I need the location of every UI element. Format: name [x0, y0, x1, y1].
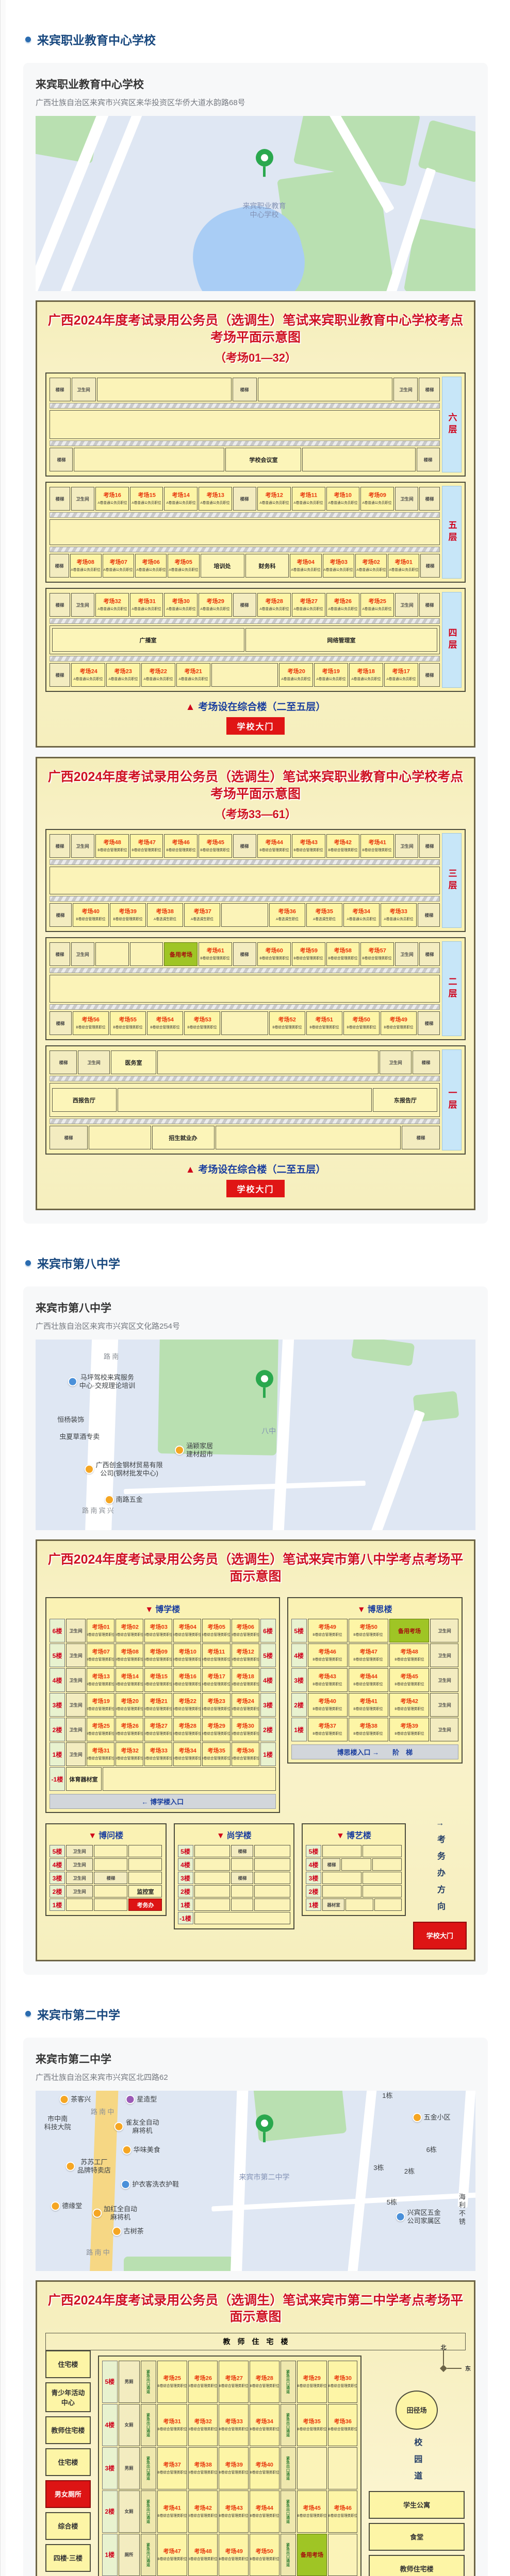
- room-sublabel: B卷综合管理类职位: [354, 1706, 383, 1711]
- building-label: ▼博思楼: [291, 1602, 458, 1615]
- campus-building-box: 校 园 道: [408, 2434, 425, 2487]
- open-area: [50, 867, 440, 894]
- exam-room-cell: 考场06B卷综合管理类职位: [232, 1619, 259, 1642]
- facility-cell: 卫生间: [395, 593, 419, 617]
- room-sublabel: B卷综合管理类职位: [157, 2513, 187, 2518]
- room-sublabel: A卷普通公务员职位: [324, 567, 353, 572]
- exam-room-cell: 考场35B卷综合管理类职位: [202, 1742, 230, 1766]
- corridor-band: [50, 968, 440, 973]
- corridor-band: [50, 656, 440, 662]
- room-sublabel: B卷综合管理类职位: [116, 1756, 143, 1760]
- room-label: 卫生间: [70, 1677, 83, 1683]
- room-cell-empty: [128, 1872, 162, 1884]
- room-label: 考场09: [150, 1648, 167, 1656]
- exam-room-cell: 考场52B卷综合管理类职位: [269, 1011, 305, 1035]
- exam-room-cell: 考场20A卷普通公务员职位: [279, 663, 313, 687]
- floor-row: 楼梯卫生间考场16A卷普通公务员职位考场15A卷普通公务员职位考场14A卷普通公…: [50, 487, 440, 511]
- room-sublabel: B卷综合管理类职位: [354, 1682, 383, 1686]
- map-poi-label: 涵颖家居 建材超市: [175, 1442, 213, 1459]
- corridor-band: [50, 403, 440, 409]
- floor-plan: 楼梯卫生间备用考场考场61B卷综合管理类职位楼梯考场60B卷综合管理类职位考场5…: [45, 937, 466, 1040]
- floor-plan: 楼梯卫生间医务室卫生间楼梯西报告厅东报告厅楼梯招生就业办楼梯一层: [45, 1045, 466, 1155]
- room-label: 考场59: [300, 946, 317, 955]
- floor-row: -1楼体育器材室: [50, 1767, 276, 1791]
- facility-cell: 女厕: [119, 2490, 140, 2533]
- floor-tag: 5楼: [291, 1619, 307, 1642]
- floor-plan: 楼梯卫生间考场32A卷普通公务员职位考场31A卷普通公务员职位考场30A卷普通公…: [45, 588, 466, 692]
- floor-plan: 楼梯卫生间考场48B卷综合管理类职位考场47B卷综合管理类职位考场46B卷综合管…: [45, 829, 466, 932]
- corridor-cell: 紧急出口通道: [281, 2404, 296, 2446]
- office-cell: 医务室: [111, 1050, 156, 1074]
- layout-col: 5楼男厕紧急出口通道考场25B卷综合管理类职位考场26B卷综合管理类职位考场27…: [98, 2350, 362, 2576]
- poster-title: 广西2024年度考试录用公务员（选调生）笔试来宾职业教育中心学校考点考场平面示意…: [45, 312, 466, 346]
- exam-room-cell: 考场13B卷综合管理类职位: [87, 1668, 114, 1692]
- office-cell: 招生就业办: [152, 1126, 215, 1149]
- map-poi-label: 虫夏草酒专卖: [59, 1433, 100, 1441]
- room-sublabel: B卷综合管理类职位: [328, 2513, 357, 2518]
- room-cell-empty: [194, 1858, 231, 1871]
- room-sublabel: B卷综合管理类职位: [188, 2470, 218, 2475]
- layout-col: ↑ 考 务 办 方 向学校大门: [413, 1818, 467, 1949]
- floor-row: 6楼卫生间考场01B卷综合管理类职位考场02B卷综合管理类职位考场03B卷综合管…: [50, 1619, 276, 1642]
- room-sublabel: B卷综合管理类职位: [87, 1632, 114, 1637]
- corridor-band: [50, 547, 440, 552]
- map-road: [458, 2091, 475, 2208]
- exam-room-cell: 考场27B卷综合管理类职位: [219, 2361, 249, 2403]
- exam-room-cell: 考场29B卷综合管理类职位: [297, 2361, 327, 2403]
- facility-cell: 卫生间: [395, 487, 419, 511]
- map-poi-label: 3栋: [373, 2164, 384, 2172]
- floor-row: 4楼卫生间: [50, 1858, 162, 1871]
- corridor-band: [50, 440, 440, 446]
- room-label: 楼梯: [240, 951, 249, 957]
- floor-row: 楼梯考场08A卷普通公务员职位考场07A卷普通公务员职位考场06A卷普通公务员职…: [50, 554, 440, 578]
- room-label: 考场14: [172, 491, 190, 499]
- room-sublabel: A卷普通公务员职位: [294, 500, 323, 505]
- corridor-cell: 紧急出口通道: [281, 2447, 296, 2489]
- floor-tag: 5楼: [260, 1643, 276, 1667]
- floor-tag: 5楼: [178, 1845, 193, 1857]
- floor-row: 楼梯卫生间备用考场考场61B卷综合管理类职位楼梯考场60B卷综合管理类职位考场5…: [50, 942, 440, 966]
- room-label: 考场24: [79, 667, 97, 675]
- poster-note: ▲考场设在综合楼（二至五层）: [45, 699, 466, 713]
- floor-row: 2楼考场40B卷综合管理类职位考场41B卷综合管理类职位考场42B卷综合管理类职…: [291, 1693, 458, 1717]
- room-sublabel: B卷综合管理类职位: [144, 1706, 172, 1711]
- facility-cell: 楼梯: [419, 378, 440, 401]
- map-pin-icon: [256, 149, 273, 177]
- poi-icon: [59, 2095, 69, 2104]
- room-sublabel: B卷综合管理类职位: [116, 1657, 143, 1662]
- exam-room-cell: 考场44B卷综合管理类职位: [349, 1668, 388, 1692]
- room-sublabel: B卷综合管理类职位: [87, 1682, 114, 1686]
- room-label: 考场14: [121, 1672, 138, 1681]
- room-label: 考场31: [92, 1747, 109, 1755]
- layout-row: 住宅楼青少年活动中心教师住宅楼住宅楼男女厕所综合楼四楼·三楼教师住宅楼5楼男厕紧…: [45, 2350, 466, 2576]
- room-sublabel: B卷综合管理类职位: [232, 1706, 259, 1711]
- room-sublabel: B卷综合管理类职位: [297, 2513, 326, 2518]
- exam-room-cell: 考场16A卷普通公务员职位: [95, 487, 129, 511]
- building-label: ▼博问楼: [50, 1828, 162, 1841]
- room-cell-empty: [74, 448, 224, 471]
- room-label: 考场46: [319, 1648, 336, 1656]
- facility-cell: 楼梯: [50, 1011, 72, 1035]
- floor-tag: 3楼: [306, 1872, 321, 1884]
- room-cell-empty: [254, 1885, 290, 1897]
- floor-row: -1楼: [178, 1912, 291, 1924]
- room-label: 考场29: [207, 1722, 225, 1730]
- room-label: 楼梯: [426, 563, 435, 569]
- room-label: 楼梯: [55, 602, 64, 608]
- floor-row: 2楼: [178, 1885, 291, 1897]
- room-label: 卫生间: [73, 1848, 86, 1854]
- room-label: 考场37: [193, 907, 211, 916]
- floor-tag: 4楼: [102, 2404, 118, 2446]
- room-cell-empty: [254, 1858, 290, 1871]
- facility-cell: 楼梯: [322, 1858, 340, 1871]
- exam-room-cell: 考场04B卷综合管理类职位: [173, 1619, 201, 1642]
- building-label: ▼尚学楼: [178, 1828, 291, 1841]
- room-label: 考场37: [163, 2460, 180, 2468]
- room-label: 考场28: [265, 597, 283, 605]
- open-area: [50, 410, 440, 439]
- room-cell-empty: [128, 1845, 162, 1857]
- corridor-cell: 紧急出口通道: [281, 2361, 296, 2403]
- map-road-label: 南 路: [102, 1353, 119, 1361]
- room-sublabel: B卷综合管理类职位: [219, 2383, 249, 2388]
- room-label: 培训处: [213, 562, 231, 570]
- floor-tag: -1楼: [178, 1912, 193, 1924]
- room-sublabel: B卷综合管理类职位: [394, 1682, 424, 1686]
- floor-row: 楼梯考场56B卷综合管理类职位考场55B卷综合管理类职位考场54B卷综合管理类职…: [50, 1011, 440, 1035]
- room-cell-empty: [221, 903, 268, 927]
- room-label: 考场07: [92, 1648, 109, 1656]
- room-label: 考场36: [334, 2417, 351, 2425]
- exam-room-cell: 考场41B卷综合管理类职位: [360, 834, 394, 858]
- floor-plan: 楼梯卫生间考场16A卷普通公务员职位考场15A卷普通公务员职位考场14A卷普通公…: [45, 482, 466, 583]
- room-cell-empty: [328, 2447, 358, 2489]
- campus-building-box: 住宅楼: [45, 2350, 91, 2378]
- room-label: 卫生间: [73, 1861, 86, 1868]
- exam-site-section: 来宾市第二中学来宾市第二中学广西壮族自治区来宾市兴宾区北四路62中 南 路茶客兴…: [1, 1975, 510, 2576]
- room-sublabel: A卷普通公务员职位: [201, 606, 230, 611]
- room-sublabel: B卷综合管理类职位: [188, 2556, 218, 2561]
- map-widget[interactable]: 南 路马坪驾校来宾服务 中心·交规理论培训恒杨装饰虫夏草酒专卖涵颖家居 建材超市…: [36, 1340, 475, 1530]
- exam-room-cell: 考场29B卷综合管理类职位: [202, 1718, 230, 1741]
- section-header: 来宾职业教育中心学校: [25, 21, 510, 58]
- floor-row: 楼梯考场24A卷普通公务员职位考场23A卷普通公务员职位考场22A卷普通公务员职…: [50, 663, 440, 687]
- room-sublabel: B卷综合管理类职位: [328, 2427, 357, 2431]
- layout-col: ▼博问楼5楼卫生间4楼卫生间3楼卫生间楼梯2楼卫生间监控室1楼考务办: [45, 1818, 167, 1921]
- room-label: 考场25: [163, 2374, 180, 2382]
- exam-room-cell: 考场40B卷综合管理类职位: [308, 1693, 348, 1717]
- room-label: 备用考场: [398, 1626, 421, 1635]
- exam-room-cell: 考场59B卷综合管理类职位: [292, 942, 325, 966]
- map-pin-icon: [256, 2114, 273, 2142]
- room-label: 紧急出口通道: [286, 2413, 291, 2437]
- room-sublabel: B卷综合管理类职位: [250, 2427, 279, 2431]
- layout-stack: 5楼男厕紧急出口通道考场25B卷综合管理类职位考场26B卷综合管理类职位考场27…: [98, 2350, 362, 2576]
- layout-stack: ↑ 考 务 办 方 向学校大门: [413, 1818, 467, 1949]
- room-label: 考场44: [256, 2503, 273, 2512]
- floor-tag: 4楼: [50, 1858, 65, 1871]
- room-sublabel: B卷综合管理类职位: [144, 1632, 172, 1637]
- campus-building-box: 田径场: [396, 2391, 438, 2430]
- exam-room-cell: 考场44B卷综合管理类职位: [257, 834, 291, 858]
- room-sublabel: B卷综合管理类职位: [157, 2383, 187, 2388]
- room-sublabel: B卷综合管理类职位: [144, 1682, 172, 1686]
- exam-room-cell: 考场11A卷普通公务员职位: [292, 487, 325, 511]
- facility-cell: 楼梯: [50, 942, 70, 966]
- room-label: 楼梯: [240, 386, 249, 393]
- room-cell-empty: [94, 1845, 127, 1857]
- room-label: 考场17: [207, 1672, 225, 1681]
- exam-room-cell: 考场55B卷综合管理类职位: [110, 1011, 146, 1035]
- floor-tag: 6楼: [260, 1619, 276, 1642]
- room-label: 考场41: [163, 2503, 180, 2512]
- room-label: 考场04: [297, 558, 315, 566]
- exam-room-cell: 考场58B卷综合管理类职位: [326, 942, 360, 966]
- map-poi-label: 5栋: [387, 2198, 397, 2207]
- room-label: 考场33: [225, 2417, 242, 2425]
- corridor-band: [50, 896, 440, 902]
- exam-room-cell: 考场51B卷综合管理类职位: [306, 1011, 342, 1035]
- building-name: 博艺楼: [347, 1832, 371, 1840]
- poster-body: 楼梯卫生间考场48B卷综合管理类职位考场47B卷综合管理类职位考场46B卷综合管…: [45, 829, 466, 1197]
- room-label: 考场35: [207, 1747, 225, 1755]
- layout-col: 北东田径场校 园 道学生公寓食堂教师住宅楼教师住宅楼学生公寓篮 球 场: [369, 2350, 465, 2576]
- exam-room-cell: 考场42B卷综合管理类职位: [188, 2490, 218, 2533]
- room-label: 考场38: [156, 907, 174, 916]
- room-label: 考场02: [121, 1623, 138, 1631]
- room-label: 楼梯: [238, 1875, 246, 1881]
- campus-building-box: 综合楼: [45, 2512, 91, 2540]
- poi-icon: [105, 1495, 114, 1504]
- room-label: 考场34: [256, 2417, 273, 2425]
- room-sublabel: A卷普通公务员职位: [328, 500, 357, 505]
- room-label: 考场51: [316, 1015, 333, 1024]
- room-label: 楼梯: [240, 602, 249, 608]
- exam-room-cell: 考场23B卷综合管理类职位: [202, 1693, 230, 1717]
- room-cell-empty: [211, 663, 278, 687]
- facility-cell: 卫生间: [66, 1845, 93, 1857]
- corridor-band: [50, 859, 440, 865]
- room-label: 考场36: [278, 907, 296, 916]
- exam-room-cell: 考场01B卷综合管理类职位: [87, 1619, 114, 1642]
- exam-room-cell: 考场47B卷综合管理类职位: [130, 834, 163, 858]
- room-label: 考场48: [194, 2547, 211, 2555]
- poi-icon: [396, 2212, 405, 2222]
- room-sublabel: B卷综合管理类职位: [250, 2556, 279, 2561]
- room-label: 考场31: [163, 2417, 180, 2425]
- room-label: 卫生间: [399, 386, 412, 393]
- exam-room-cell: 考场37A卷选调生职位: [184, 903, 220, 927]
- room-sublabel: A卷普通公务员职位: [351, 676, 381, 681]
- room-cell-empty: [322, 1885, 361, 1897]
- room-sublabel: B卷综合管理类职位: [116, 1731, 143, 1736]
- room-sublabel: B卷综合管理类职位: [202, 1756, 230, 1760]
- room-label: 楼梯: [107, 1875, 116, 1881]
- room-cell-empty: [374, 1899, 402, 1911]
- room-label: 考场17: [392, 667, 410, 675]
- floor-row: 4楼: [178, 1858, 291, 1871]
- exam-room-cell: 考场29A卷普通公务员职位: [199, 593, 232, 617]
- floor-row: 1楼考场37B卷综合管理类职位考场38B卷综合管理类职位考场39B卷综合管理类职…: [291, 1718, 458, 1741]
- exam-room-cell: 考场19A卷普通公务员职位: [314, 663, 348, 687]
- floor-row: 2楼卫生间考场25B卷综合管理类职位考场26B卷综合管理类职位考场27B卷综合管…: [50, 1718, 276, 1741]
- room-sublabel: B卷综合管理类职位: [297, 2427, 326, 2431]
- room-label: 考场11: [208, 1648, 225, 1656]
- room-sublabel: A卷普通公务员职位: [166, 500, 195, 505]
- room-label: 考场39: [119, 907, 137, 916]
- map-school-label: 来宾职业教育 中心学校: [243, 201, 286, 219]
- room-label: 考场24: [236, 1697, 254, 1705]
- poi-icon: [112, 2227, 122, 2236]
- poster-body: ▼博学楼6楼卫生间考场01B卷综合管理类职位考场02B卷综合管理类职位考场03B…: [45, 1592, 466, 1949]
- open-area: [50, 975, 440, 1003]
- building-name: 博思楼: [368, 1605, 392, 1614]
- room-sublabel: B卷综合管理类职位: [394, 1706, 424, 1711]
- room-sublabel: B卷综合管理类职位: [157, 2427, 187, 2431]
- exam-room-cell: 考场60B卷综合管理类职位: [257, 942, 291, 966]
- facility-cell: 卫生间: [66, 1742, 86, 1766]
- floor-row: 5楼卫生间考场07B卷综合管理类职位考场08B卷综合管理类职位考场09B卷综合管…: [50, 1643, 276, 1667]
- room-sublabel: B卷综合管理类职位: [313, 1682, 342, 1686]
- exam-room-cell: 考场08A卷普通公务员职位: [70, 554, 102, 578]
- poi-icon: [175, 1446, 184, 1455]
- room-sublabel: A卷选调生职位: [313, 917, 336, 921]
- room-sublabel: B卷综合管理类职位: [250, 2383, 279, 2388]
- room-label: 考场19: [92, 1697, 109, 1705]
- exam-room-cell: 考场45B卷综合管理类职位: [389, 1668, 429, 1692]
- room-label: 体育器材室: [70, 1775, 98, 1783]
- exam-room-cell: 考场38B卷综合管理类职位: [349, 1718, 388, 1741]
- building-label: ▼博艺楼: [306, 1828, 402, 1841]
- room-label: 楼梯: [425, 672, 434, 678]
- room-label: 考场46: [334, 2503, 351, 2512]
- floor-row: 2楼女厕紧急出口通道考场41B卷综合管理类职位考场42B卷综合管理类职位考场43…: [102, 2490, 358, 2533]
- facility-cell: 卫生间: [71, 487, 95, 511]
- exam-room-cell: 考场13A卷普通公务员职位: [199, 487, 232, 511]
- map-poi-label: 五金小区: [413, 2113, 451, 2122]
- map-school-label: 来宾市第二中学: [239, 2173, 290, 2182]
- exam-room-cell: 考场38A卷选调生职位: [147, 903, 183, 927]
- room-sublabel: B卷综合管理类职位: [394, 1657, 424, 1662]
- floor-row: 1楼器材室: [306, 1899, 402, 1911]
- floor-row: 5楼考场49B卷综合管理类职位考场50B卷综合管理类职位备用考场卫生间: [291, 1619, 458, 1642]
- room-sublabel: B卷综合管理类职位: [232, 1756, 259, 1760]
- room-cell-empty: [302, 448, 415, 471]
- room-sublabel: B卷综合管理类职位: [116, 1632, 143, 1637]
- room-label: 楼梯: [425, 602, 434, 608]
- map-widget[interactable]: 中 南 路茶客兴星造型市中南 科技大院雀友全自动 麻将机华味美食苏苏工厂 品牌特…: [36, 2091, 475, 2271]
- layout-row: ▼博学楼6楼卫生间考场01B卷综合管理类职位考场02B卷综合管理类职位考场03B…: [45, 1592, 466, 1818]
- room-sublabel: B卷综合管理类职位: [188, 1025, 217, 1029]
- floor-tag: 2楼: [291, 1693, 307, 1717]
- room-sublabel: B卷综合管理类职位: [294, 848, 323, 852]
- poster-title: 广西2024年度考试录用公务员（选调生）笔试来宾市第二中学考点考场平面示意图: [45, 2292, 466, 2326]
- campus-building-box: 青少年活动中心: [45, 2382, 91, 2412]
- exam-room-cell: 考场48B卷综合管理类职位: [95, 834, 129, 858]
- floor-plan: 楼梯卫生间楼梯卫生间楼梯楼梯学校会议室楼梯六层: [45, 372, 466, 477]
- room-label: 考场18: [357, 667, 375, 675]
- room-label: 器材室: [327, 1902, 340, 1908]
- poster-body: 楼梯卫生间楼梯卫生间楼梯楼梯学校会议室楼梯六层楼梯卫生间考场16A卷普通公务员职…: [45, 372, 466, 735]
- bullet-icon: [25, 2011, 31, 2016]
- exam-room-cell: 考场06A卷普通公务员职位: [135, 554, 167, 578]
- room-label: 楼梯: [55, 951, 64, 957]
- exam-room-cell: 考场57B卷综合管理类职位: [360, 942, 394, 966]
- building-name: 博问楼: [98, 1832, 123, 1840]
- map-road: [360, 1410, 425, 1531]
- exam-room-cell: 考场25B卷综合管理类职位: [87, 1718, 114, 1741]
- room-label: 考场28: [178, 1722, 196, 1730]
- floor-row: 5楼卫生间: [50, 1845, 162, 1857]
- room-label: 考场15: [138, 491, 155, 499]
- poi-icon: [413, 2113, 422, 2122]
- floor-row: 4楼女厕紧急出口通道考场31B卷综合管理类职位考场32B卷综合管理类职位考场33…: [102, 2404, 358, 2446]
- facility-cell: 楼梯: [420, 554, 440, 578]
- exam-room-cell: 考场37B卷综合管理类职位: [157, 2447, 187, 2489]
- section-header: 来宾市第八中学: [25, 1244, 510, 1281]
- map-widget[interactable]: 来宾职业教育 中心学校: [36, 116, 475, 291]
- exam-room-cell: 考场12B卷综合管理类职位: [232, 1643, 259, 1667]
- room-label: 考场40: [319, 1697, 336, 1705]
- map-road-label: 中 南 路: [89, 2108, 114, 2116]
- room-cell-empty: [66, 1899, 93, 1911]
- exam-room-cell: 考场43B卷综合管理类职位: [219, 2490, 249, 2533]
- exam-room-cell: 考场33B卷综合管理类职位: [219, 2404, 249, 2446]
- map-school-label: 八中: [261, 1427, 276, 1436]
- room-label: 卫生间: [76, 843, 89, 849]
- exam-room-cell: 考场09A卷普通公务员职位: [360, 487, 394, 511]
- room-sublabel: B卷综合管理类职位: [313, 1706, 342, 1711]
- floor-level-tag: 六层: [442, 377, 462, 472]
- room-label: 考场26: [334, 597, 352, 605]
- room-label: 卫生间: [438, 1726, 451, 1733]
- room-label: 考场58: [334, 946, 352, 955]
- room-sublabel: B卷综合管理类职位: [313, 1657, 342, 1662]
- room-label: 考场11: [300, 491, 317, 499]
- map-poi-label: 苏苏工厂 品牌特卖店: [66, 2158, 111, 2175]
- room-cell-empty: [322, 1872, 361, 1884]
- facility-cell: 男厕: [119, 2447, 140, 2489]
- room-label: 卫生间: [70, 1628, 83, 1634]
- floor-tag: 3楼: [102, 2447, 118, 2489]
- section-title: 来宾职业教育中心学校: [37, 30, 156, 48]
- building-name: 博学楼: [155, 1605, 180, 1614]
- facility-cell: 楼梯: [50, 1050, 77, 1074]
- room-label: 医务室: [125, 1058, 142, 1066]
- floor-level-tag: 二层: [442, 941, 462, 1036]
- facility-cell: 卫生间: [430, 1693, 458, 1717]
- facility-cell: 卫生间: [66, 1718, 86, 1741]
- room-sublabel: B卷综合管理类职位: [202, 1632, 230, 1637]
- office-cell: 学校会议室: [225, 448, 301, 471]
- floor-tag: 3楼: [291, 1668, 307, 1692]
- map-poi-label: 2栋: [404, 2167, 415, 2176]
- exam-room-cell: 考场11B卷综合管理类职位: [202, 1643, 230, 1667]
- room-sublabel: A卷普通公务员职位: [143, 676, 173, 681]
- room-sublabel: B卷综合管理类职位: [250, 2513, 279, 2518]
- exam-room-cell: 考场04A卷普通公务员职位: [290, 554, 321, 578]
- triangle-marker-icon: ▼: [217, 1832, 225, 1840]
- exam-room-cell: 考场12A卷普通公务员职位: [257, 487, 291, 511]
- map-poi-label: 1栋: [382, 2092, 392, 2100]
- facility-cell: 楼梯: [50, 663, 70, 687]
- map-poi-label: 6栋: [426, 2146, 437, 2154]
- room-sublabel: B卷综合管理类职位: [87, 1731, 114, 1736]
- room-cell-empty: [194, 1845, 231, 1857]
